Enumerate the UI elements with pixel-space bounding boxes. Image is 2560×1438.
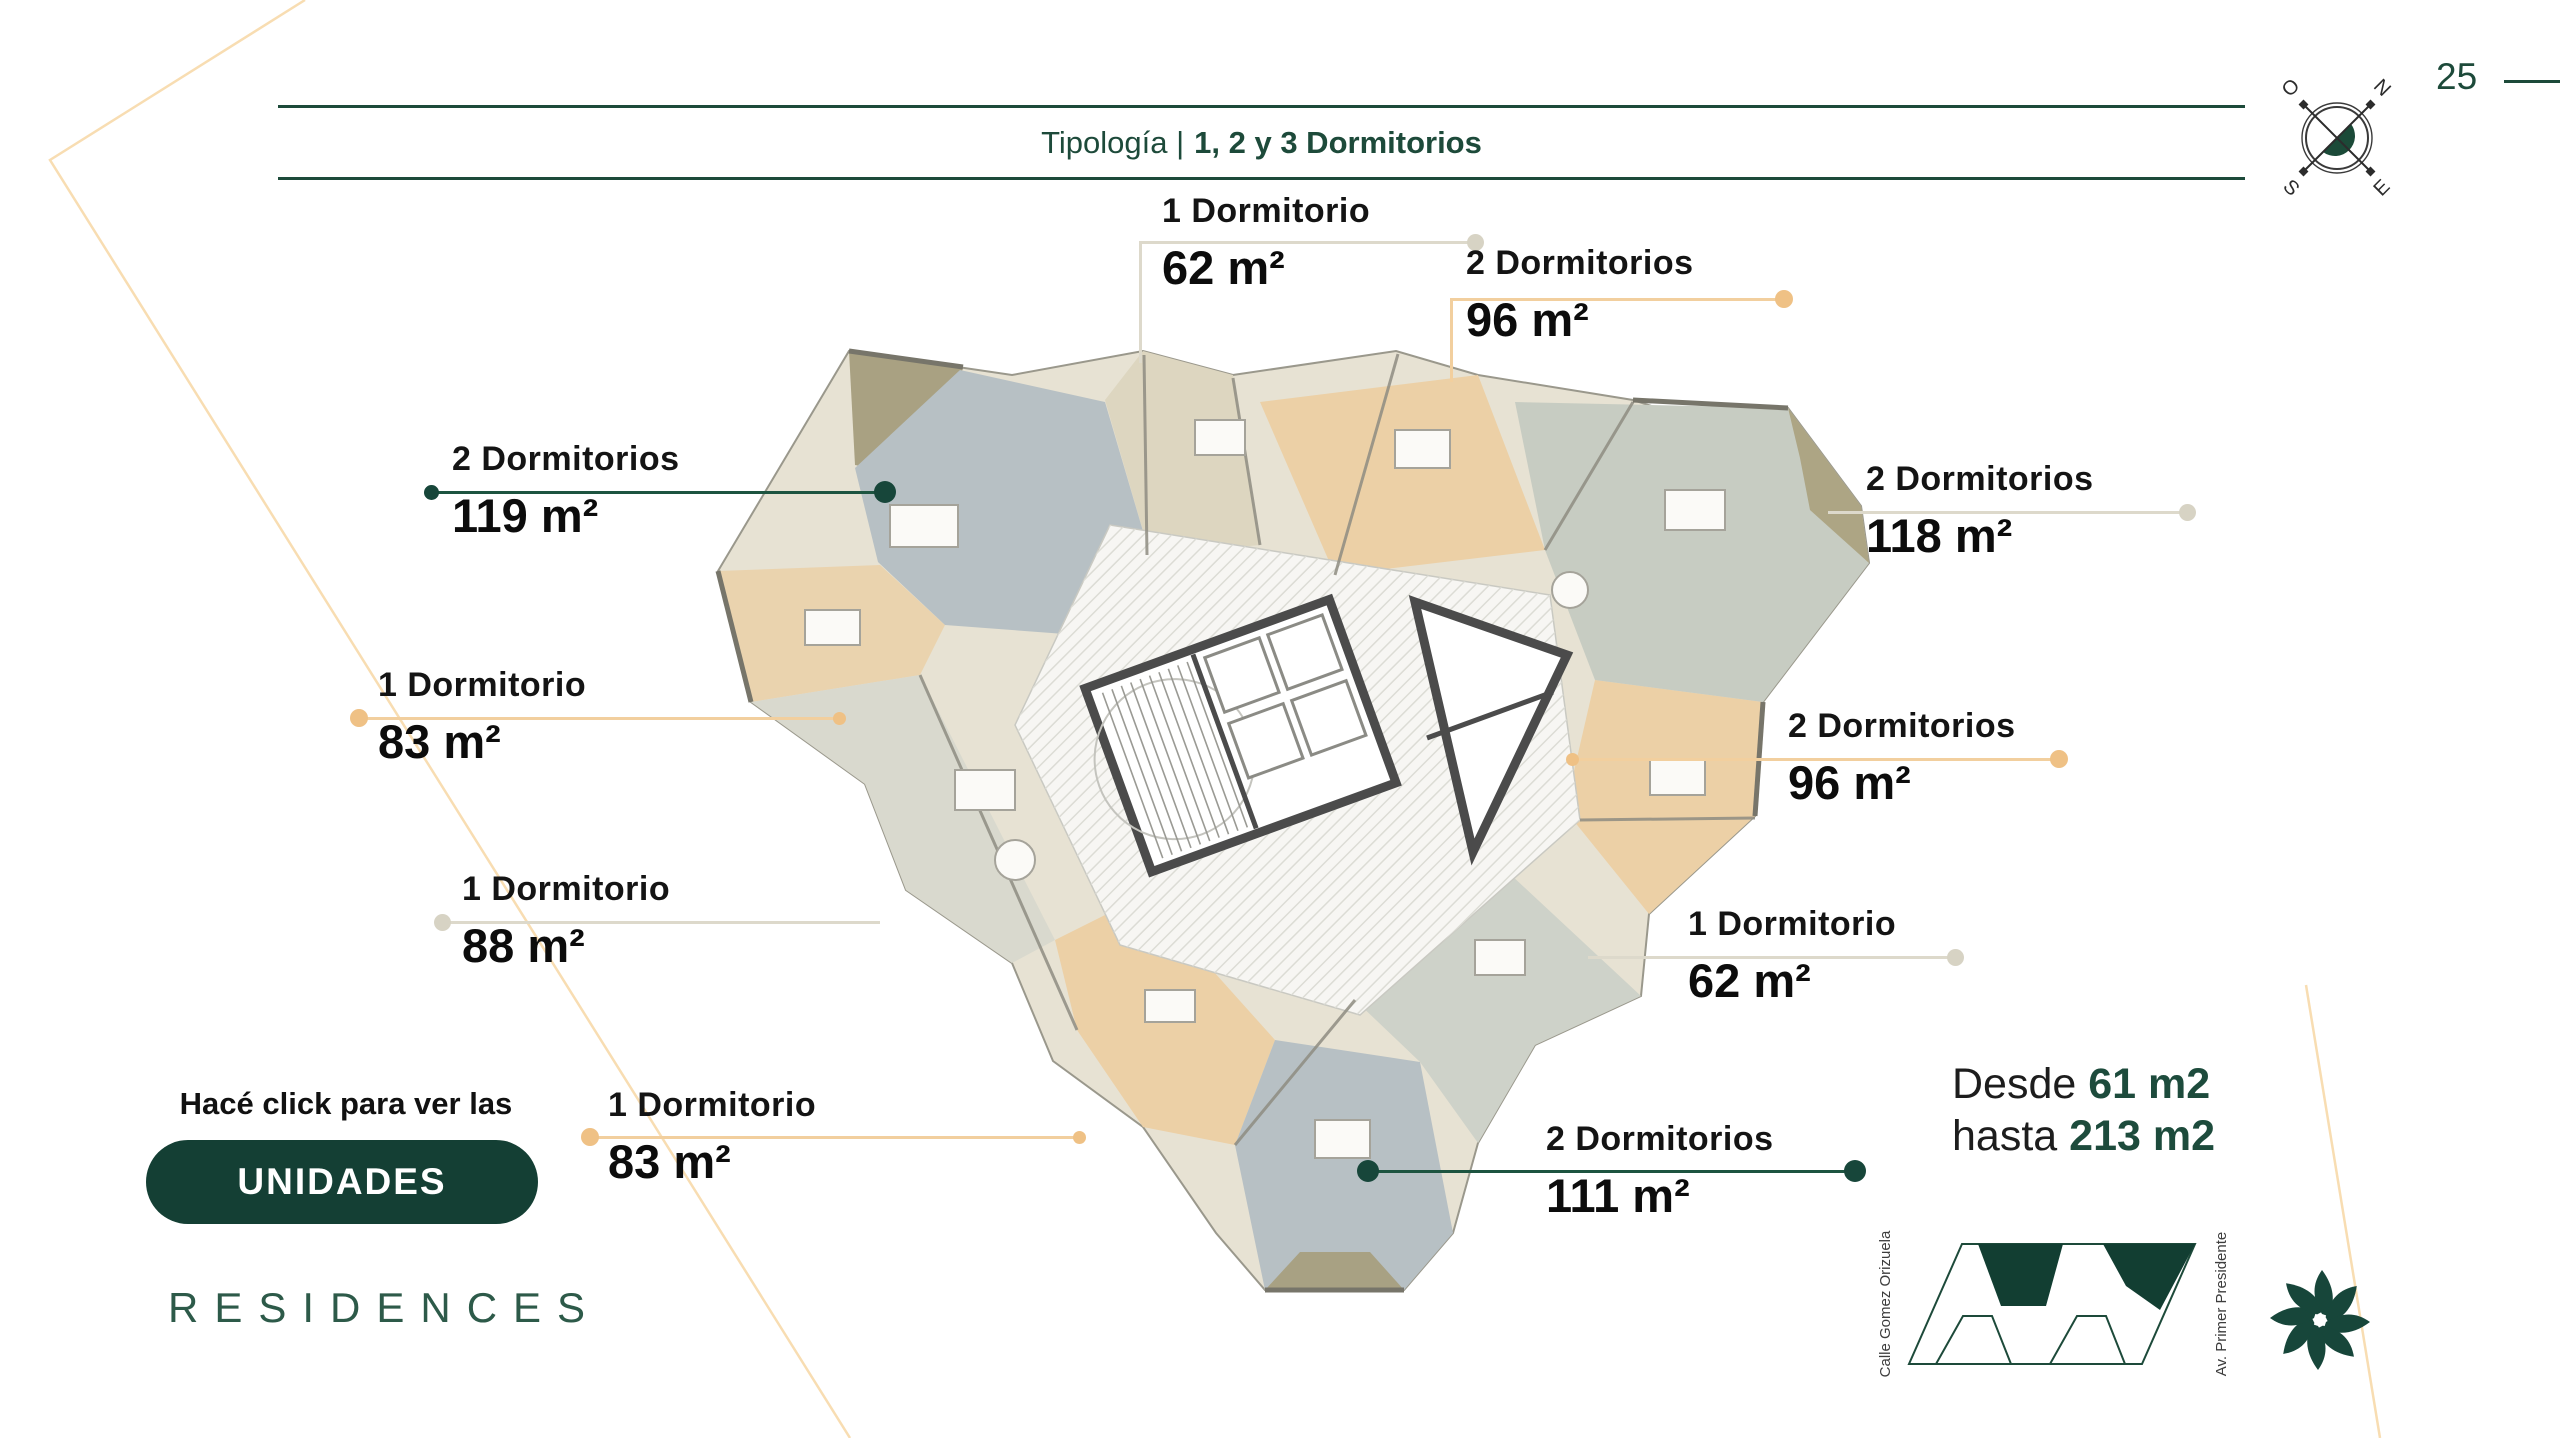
slide: Tipología | 1, 2 y 3 Dormitorios 25 N O … [0, 0, 2560, 1438]
unit-label-1dorm-62-top: 1 Dormitorio 62 m² [1162, 192, 1370, 295]
title-prefix: Tipología | [1041, 125, 1184, 161]
leader-96-top-drop [1450, 298, 1453, 382]
svg-text:E: E [2370, 176, 2395, 198]
street-label-right: Av. Primer Presidente [2213, 1232, 2230, 1377]
leader-96-top [1451, 298, 1787, 301]
leader-88 [440, 921, 880, 924]
page-number: 25 [2436, 56, 2477, 98]
svg-text:N: N [2369, 78, 2395, 101]
unidades-button[interactable]: UNIDADES [146, 1140, 538, 1224]
leader-62-right [1588, 956, 1958, 959]
leader-83-left [356, 717, 840, 720]
leader-96-right [1572, 758, 2062, 761]
leader-83-bottom [587, 1136, 1080, 1139]
compass-icon: N O S E [2278, 78, 2396, 198]
siteplan-diagram: Calle Gomez Orizuela Av. Primer Presiden… [1878, 1226, 2238, 1391]
unit-label-2dorm-96-top: 2 Dormitorios 96 m² [1466, 244, 1694, 347]
street-label-left: Calle Gomez Orizuela [1878, 1230, 1894, 1377]
residences-wordmark: RESIDENCES [168, 1284, 601, 1332]
area-range: Desde 61 m2 hasta 213 m2 [1952, 1058, 2215, 1163]
cta-hint: Hacé click para ver las [150, 1086, 542, 1122]
leader-62-top-drop [1139, 241, 1142, 363]
leader-62-top [1140, 241, 1478, 244]
leader-119 [430, 491, 890, 494]
svg-text:O: O [2278, 78, 2304, 101]
slide-title: Tipología | 1, 2 y 3 Dormitorios [278, 105, 2245, 180]
svg-text:S: S [2279, 176, 2304, 198]
leader-111 [1363, 1170, 1860, 1173]
pinwheel-logo-icon [2262, 1262, 2378, 1378]
title-bold: 1, 2 y 3 Dormitorios [1194, 125, 1482, 161]
page-number-rule [2504, 80, 2560, 83]
leader-118 [1828, 511, 2190, 514]
